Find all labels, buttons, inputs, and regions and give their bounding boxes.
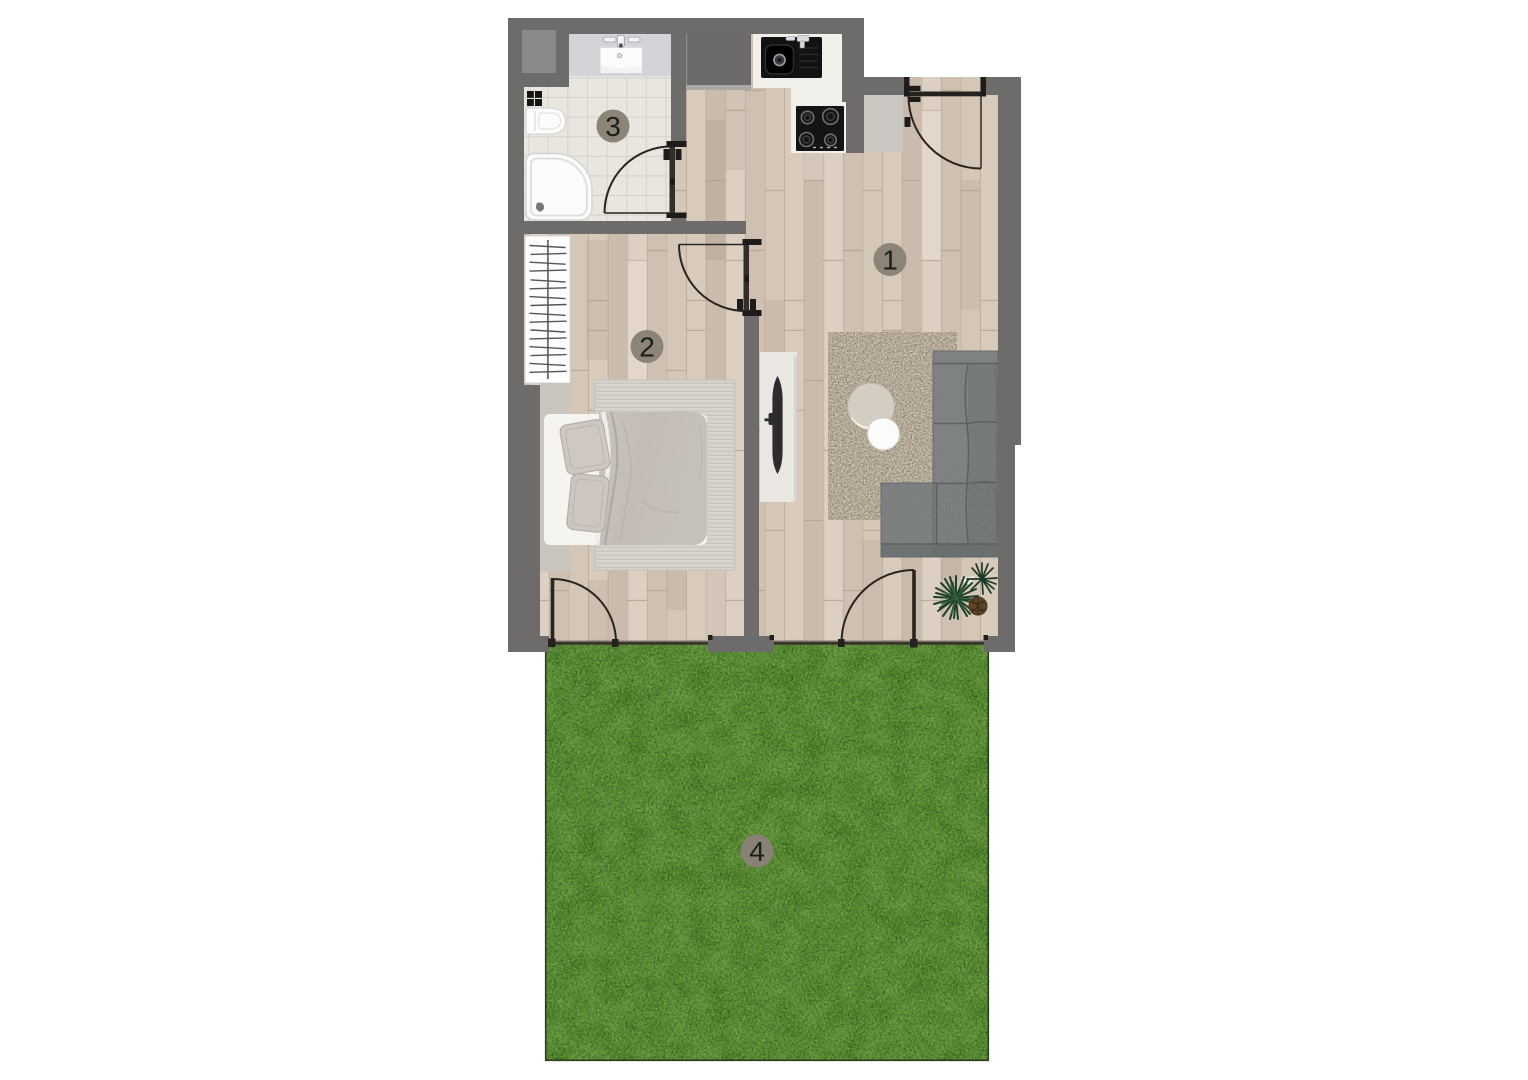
svg-text:2: 2	[639, 332, 655, 363]
svg-text:3: 3	[605, 111, 621, 142]
svg-text:4: 4	[749, 836, 765, 867]
svg-text:1: 1	[882, 245, 898, 276]
